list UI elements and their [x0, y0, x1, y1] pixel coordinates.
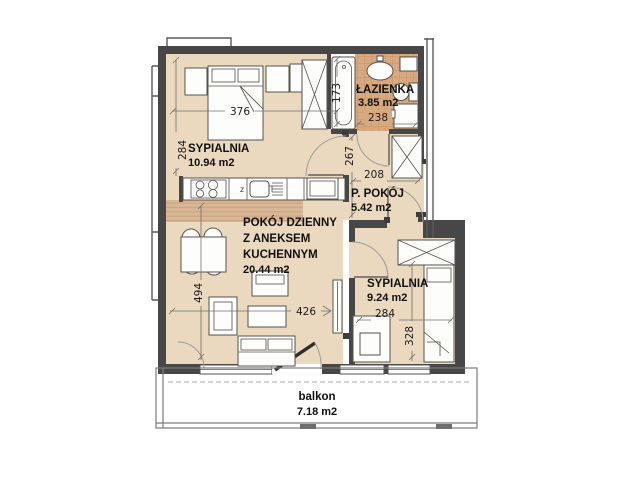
armchair [209, 297, 237, 335]
wall-bath-bottom-b [389, 129, 424, 134]
coffee-table [248, 306, 286, 327]
wall-bedroom2-left-a [349, 228, 355, 242]
balcony-name: balkon [298, 391, 335, 403]
wall-jog-topright [423, 220, 465, 238]
bedroom2-name: SYPIALNIA [367, 278, 428, 290]
balcony-area: 7.18 m2 [297, 406, 337, 418]
dim-238: 238 [368, 112, 388, 124]
living-name-line2: Z ANEKSEM [243, 233, 310, 245]
dim-284-left: 284 [177, 140, 189, 160]
kitchen-sink [250, 181, 283, 197]
corridor-edge-lines [424, 38, 434, 238]
facade-trim-left [152, 66, 158, 300]
desk-chair [360, 333, 380, 355]
passage-threshold [343, 202, 349, 220]
living-area: 20.44 m2 [243, 264, 289, 276]
dim-208: 208 [364, 169, 384, 181]
fridge [307, 178, 338, 199]
sink-mark-label: z [240, 185, 244, 194]
floor-plan-drawing: z [0, 0, 640, 480]
bedroom1-door-hinge [342, 130, 348, 135]
wall-stub-mark [343, 333, 350, 339]
nightstand-right [266, 66, 289, 92]
wall-bedroom2-top [349, 220, 387, 228]
dining-table [181, 237, 226, 272]
bedroom2-area: 9.24 m2 [367, 292, 407, 304]
hallway-name: P. POKÓJ [351, 187, 404, 200]
railing-post [436, 424, 452, 429]
single-bed [424, 265, 454, 362]
door-threshold [349, 242, 355, 278]
hallway-furniture [392, 136, 422, 178]
wall-right-lower [455, 238, 465, 374]
sofa [238, 336, 295, 366]
dim-494: 494 [193, 283, 205, 303]
wardrobe-hallway [392, 136, 422, 178]
bathroom-area: 3.85 m2 [358, 97, 398, 109]
wall-top [158, 46, 424, 54]
living-name-line1: POKÓJ DZIENNY [243, 216, 337, 229]
living-name-line3: KUCHENNYM [243, 249, 318, 261]
parapet-trim-topleft [167, 38, 231, 46]
dim-328: 328 [404, 326, 416, 346]
nightstand-left [185, 68, 207, 95]
radiator [333, 280, 342, 333]
dim-284-bedroom2: 284 [375, 308, 395, 320]
counter-end-panel [179, 176, 183, 202]
dim-173: 173 [331, 83, 343, 103]
double-bed [208, 66, 263, 140]
wall-left [158, 46, 166, 372]
door-threshold [387, 220, 423, 228]
bathroom-name: ŁAZIENKA [356, 84, 414, 96]
hallway-area: 5.42 m2 [351, 202, 391, 214]
wardrobe-bedroom1 [302, 60, 327, 129]
dim-426: 426 [296, 306, 316, 318]
bathroom-cabinet [400, 57, 417, 71]
kitchen-annex: z [183, 178, 345, 200]
railing-post [300, 424, 316, 429]
window-bedroom2 [388, 365, 430, 374]
bedroom2-door-hinge [384, 217, 390, 223]
dim-376: 376 [230, 106, 250, 118]
dim-267: 267 [344, 146, 356, 166]
bedroom1-area: 10.94 m2 [188, 157, 234, 169]
desk-with-chair [353, 316, 390, 362]
entrance-jamb-bottom [416, 212, 426, 217]
window-living-mid [340, 365, 384, 374]
floor-plan: z [0, 0, 640, 480]
wardrobe-bedroom2 [398, 240, 455, 265]
bedroom1-name: SYPIALNIA [188, 143, 249, 155]
